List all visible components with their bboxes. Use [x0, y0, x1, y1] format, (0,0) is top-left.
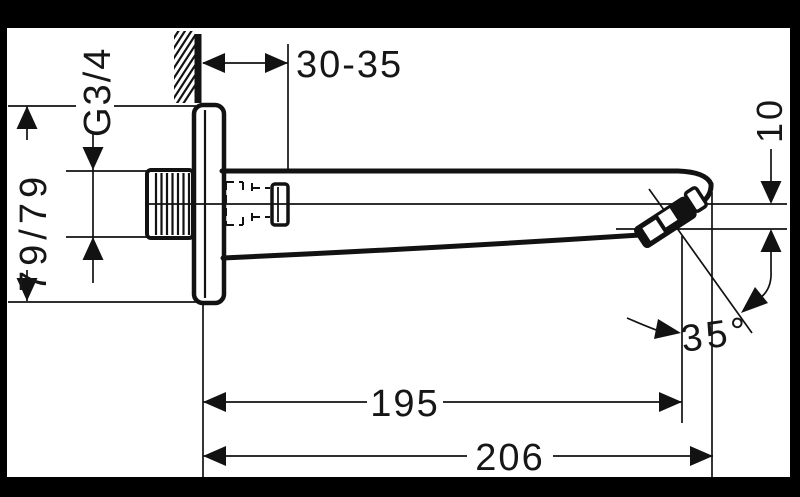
dim-thread-label: G3/4 — [77, 47, 119, 137]
dim-reach-total-label: 206 — [475, 437, 544, 479]
thread-lines — [156, 173, 189, 235]
spout-dimension-drawing: 30-35 G3/4 79/79 10 195 — [0, 0, 800, 497]
technical-drawing-page: 30-35 G3/4 79/79 10 195 — [0, 0, 800, 497]
dim-wall-distance-label: 30-35 — [296, 44, 403, 86]
dim-reach-aerator-label: 195 — [370, 383, 439, 425]
dim-plate-label: 79/79 — [13, 172, 55, 292]
dim-outlet-drop-label: 10 — [749, 97, 790, 143]
